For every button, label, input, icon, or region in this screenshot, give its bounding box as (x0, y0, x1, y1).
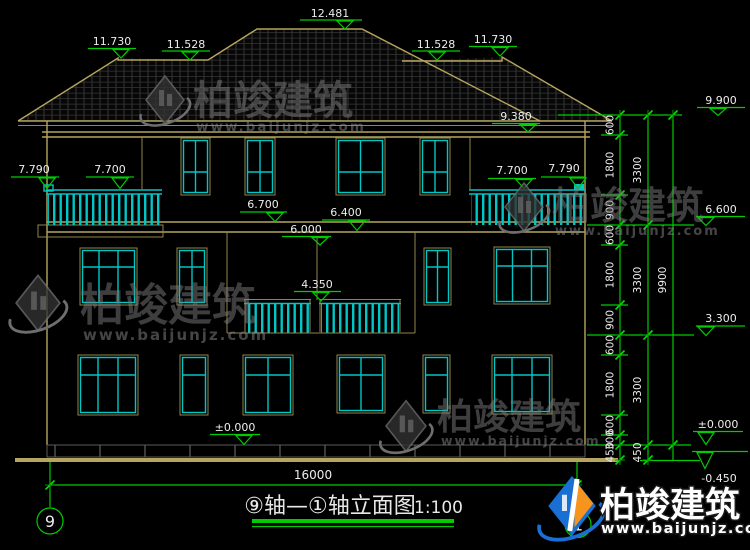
watermark-url: www.baijunjz.com (83, 326, 268, 344)
window (180, 355, 208, 415)
drawing-scale: 1:100 (414, 498, 463, 518)
elevation-canvas: 6001800900600180090060018006003004503300… (0, 0, 750, 550)
elevation-label: 9.900 (705, 94, 737, 107)
railing (46, 190, 162, 225)
axis-label-9: 9 (45, 512, 55, 531)
dimension-label: 900 (605, 310, 617, 330)
watermark-url: www.baijunjz.com (441, 433, 601, 448)
elevation-triangle (112, 178, 128, 189)
window (245, 138, 275, 195)
elevation-triangle (236, 436, 252, 445)
watermark-logo (10, 275, 67, 332)
elevation-label: 7.790 (548, 162, 580, 175)
elevation-triangle (337, 21, 353, 29)
dimension-label: 1800 (605, 372, 617, 399)
elevation-label: 7.700 (94, 163, 126, 176)
elevation-label: 6.700 (247, 198, 279, 211)
dimension-label: 1800 (605, 262, 617, 289)
elevation-triangle (182, 52, 198, 60)
window (424, 248, 451, 305)
elevation-triangle (492, 48, 508, 57)
dimension-label: 3300 (632, 267, 644, 294)
elevation-label: 4.350 (301, 278, 333, 291)
dimension-label: 600 (605, 335, 617, 355)
elevation-triangle (698, 327, 714, 336)
ground-line (15, 458, 618, 462)
elevation-label: 6.400 (330, 206, 362, 219)
elevation-label: 6.600 (705, 203, 737, 216)
elevation-triangle (710, 109, 726, 116)
window (420, 138, 450, 195)
elevation-label: 11.528 (417, 38, 456, 51)
dimension-labels: 6001800900600180090060018006003004503300… (605, 115, 670, 463)
watermark-url: www.baijunjz.com (555, 224, 720, 239)
brand-url: www.baijunjz.com (601, 521, 750, 537)
dimension-label: 9900 (657, 267, 669, 294)
elevation-label: 12.481 (311, 7, 350, 20)
left-balcony-slab (38, 225, 163, 237)
window (181, 138, 210, 195)
drawing-title: ⑨轴—①轴立面图 (244, 494, 415, 519)
dimension-label: 450 (632, 442, 644, 462)
elevation-label: ±0.000 (215, 421, 256, 434)
axis-bubble-9: 9 (37, 508, 63, 534)
dimension-label: 3300 (632, 377, 644, 404)
elevation-triangle (429, 52, 445, 60)
dimension-label: 3300 (632, 157, 644, 184)
window (243, 355, 293, 415)
window (78, 355, 138, 415)
elevation-label: 3.300 (705, 312, 737, 325)
elevation-triangle (698, 433, 714, 445)
elevation-label: 11.528 (167, 38, 206, 51)
watermark-text: 柏竣建筑 (193, 78, 353, 124)
watermark-url: www.baijunjz.com (196, 119, 366, 135)
watermark-bottom: 柏竣建筑 www.baijunjz.com (380, 397, 600, 453)
title-block: ⑨轴—①轴立面图 1:100 (244, 494, 463, 527)
window (494, 247, 550, 304)
brand-badge: 柏竣建筑 www.baijunjz.com (539, 476, 750, 540)
elevation-label: -0.450 (701, 472, 736, 485)
bottom-dimension-label: 16000 (294, 468, 332, 482)
elevation-label: 11.730 (93, 35, 132, 48)
elevation-triangle (312, 238, 328, 246)
elevation-triangle (267, 213, 283, 222)
window (336, 138, 385, 195)
dimension-label: 600 (605, 115, 617, 135)
watermark-text: 柏竣建筑 (552, 184, 704, 228)
watermark-left: 柏竣建筑 www.baijunjz.com (10, 275, 268, 344)
cad-elevation-drawing: 6001800900600180090060018006003004503300… (0, 0, 750, 550)
watermark-text: 柏竣建筑 (80, 280, 256, 331)
elevation-label: 7.790 (18, 163, 50, 176)
watermark-right: 柏竣建筑 www.baijunjz.com (499, 183, 719, 239)
elevation-label: 7.700 (496, 164, 528, 177)
railing (319, 300, 401, 333)
elevation-label: ±0.000 (698, 418, 739, 431)
watermark-text: 柏竣建筑 (437, 397, 581, 438)
elevation-triangle (113, 50, 129, 59)
dimension-label: 450 (605, 442, 617, 462)
elevation-label: 6.000 (290, 223, 322, 236)
title-underline-thick (252, 519, 454, 523)
dimension-label: 1800 (605, 152, 617, 179)
windows (78, 138, 552, 415)
brand-name: 柏竣建筑 (600, 485, 740, 526)
window (337, 355, 385, 413)
elevation-label: 11.730 (474, 33, 513, 46)
elevation-label: 9.380 (500, 110, 532, 123)
